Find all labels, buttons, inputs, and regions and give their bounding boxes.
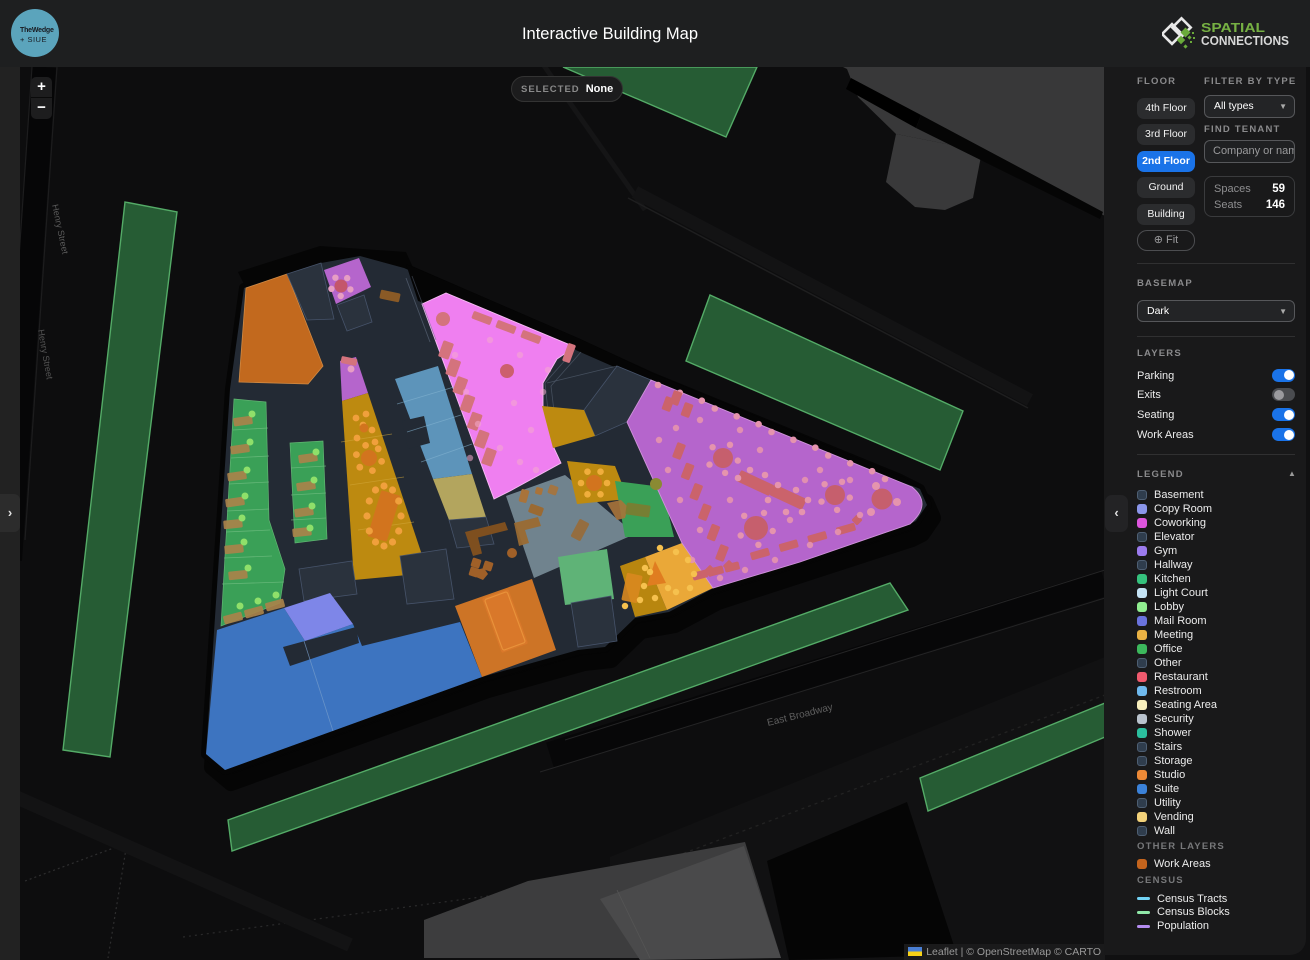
svg-text:CONNECTIONS: CONNECTIONS	[1201, 33, 1289, 48]
